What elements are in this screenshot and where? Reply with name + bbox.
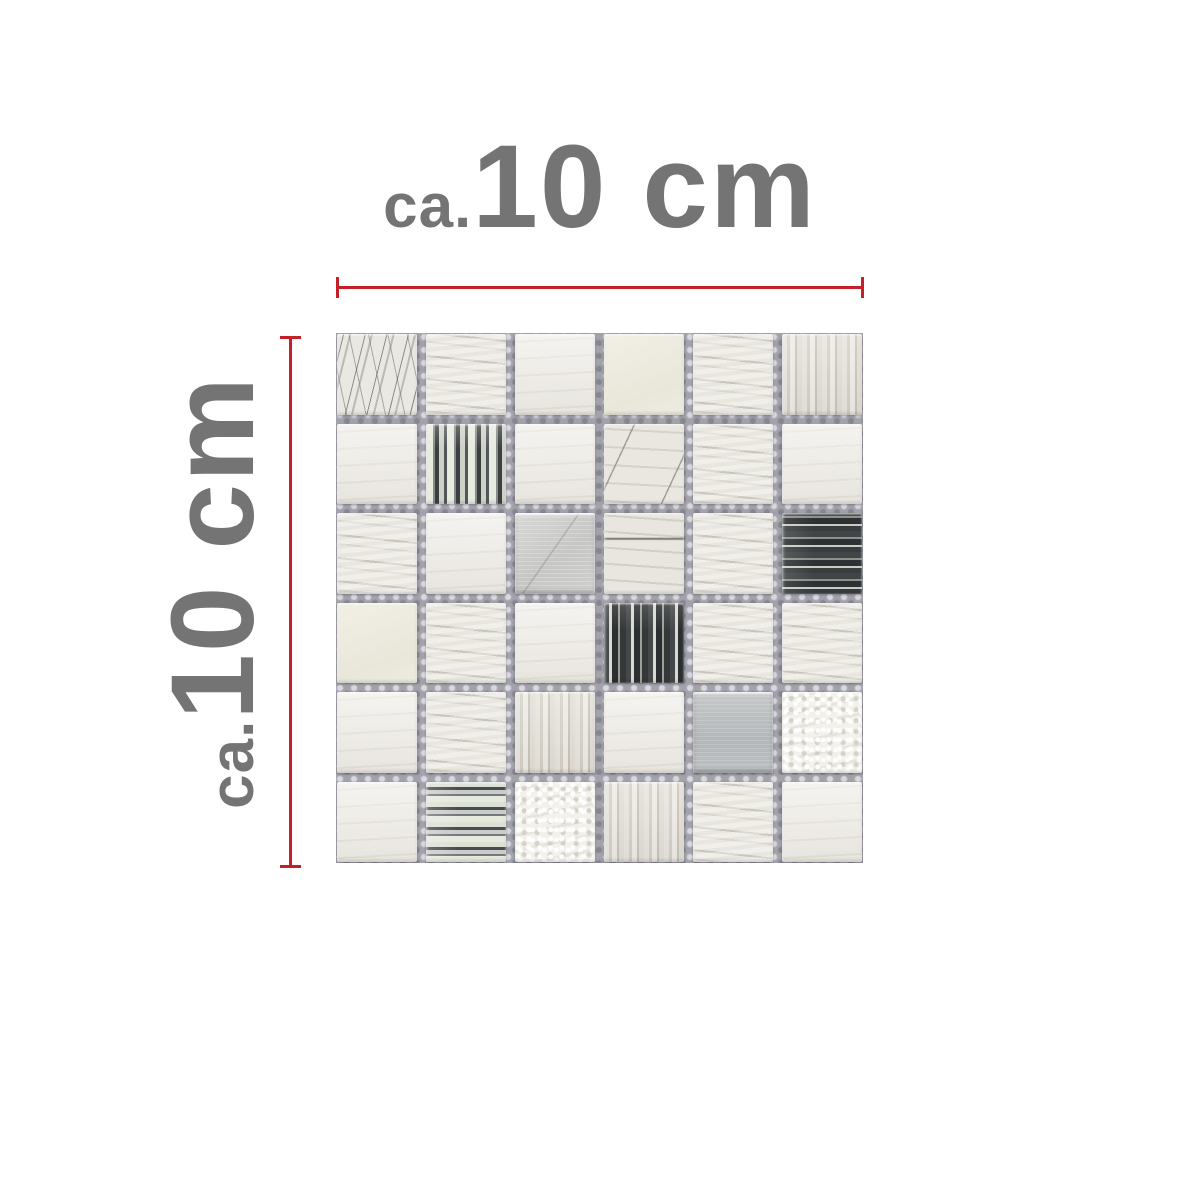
mosaic-tile [337, 782, 417, 863]
width-value: 10 cm [472, 128, 817, 246]
height-measure-cap-bottom [280, 865, 301, 868]
mosaic-tile [693, 692, 773, 773]
mosaic-tile [426, 692, 506, 773]
mosaic-tile [515, 334, 595, 415]
mosaic-tile [782, 692, 862, 773]
mosaic-tile [604, 513, 684, 594]
height-value: 10 cm [154, 375, 272, 720]
mosaic-tile [604, 782, 684, 863]
mosaic-tile [515, 513, 595, 594]
mosaic-tile [693, 513, 773, 594]
mosaic-tile [782, 782, 862, 863]
mosaic-tile [782, 334, 862, 415]
product-dimension-image: ca.10 cm ca.10 cm [0, 0, 1200, 1200]
mosaic-tile [515, 603, 595, 684]
mosaic-tile [782, 513, 862, 594]
mosaic-tile [693, 782, 773, 863]
mosaic-tile [515, 692, 595, 773]
mosaic-tile [337, 692, 417, 773]
height-dimension-label-text: ca.10 cm [154, 375, 272, 809]
mosaic-tile [515, 782, 595, 863]
mosaic-tile [337, 513, 417, 594]
mosaic-tile [337, 334, 417, 415]
mosaic-tile [426, 782, 506, 863]
mosaic-tile [426, 334, 506, 415]
mosaic-tile [337, 603, 417, 684]
mosaic-tile [693, 334, 773, 415]
height-measure-cap-top [280, 336, 301, 339]
mosaic-tile [337, 424, 417, 505]
mosaic-tile [604, 603, 684, 684]
mosaic-tile [693, 603, 773, 684]
mosaic-tile [426, 424, 506, 505]
mosaic-tile [604, 334, 684, 415]
mosaic-tile [604, 424, 684, 505]
height-measure-line [289, 336, 292, 868]
mosaic-tile [693, 424, 773, 505]
mosaic-tile [604, 692, 684, 773]
mosaic-tile [515, 424, 595, 505]
width-measure-cap-right [861, 277, 864, 298]
mosaic-tile [782, 424, 862, 505]
mosaic-tile-sheet [336, 333, 863, 863]
height-approx-prefix: ca. [202, 720, 264, 809]
width-measure-line [336, 286, 864, 289]
width-approx-prefix: ca. [383, 176, 472, 238]
mosaic-tile [426, 603, 506, 684]
width-measure-cap-left [336, 277, 339, 298]
mosaic-tile [782, 603, 862, 684]
mosaic-tile [426, 513, 506, 594]
width-dimension-label: ca.10 cm [316, 128, 884, 258]
